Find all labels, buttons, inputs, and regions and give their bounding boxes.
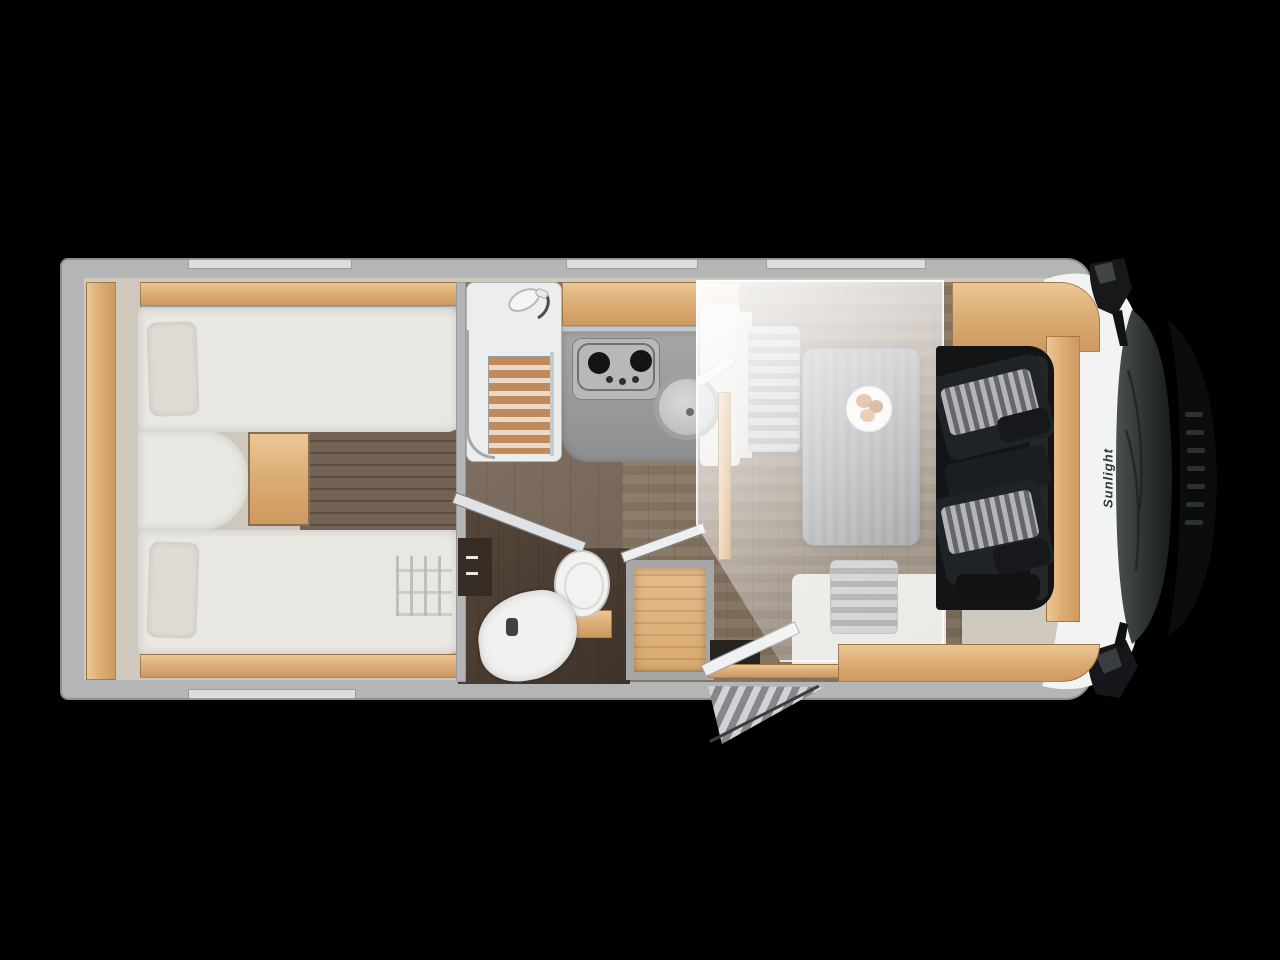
window xyxy=(766,259,926,269)
cab-seat-cushion xyxy=(956,574,1040,600)
between-beds-floor xyxy=(300,430,458,530)
windshield xyxy=(1116,310,1172,644)
basin-faucet xyxy=(506,618,518,636)
front-grille-mass xyxy=(1168,320,1217,636)
cabinet-handle xyxy=(466,556,478,559)
sink-drain xyxy=(686,408,694,416)
headboard-shelf xyxy=(86,282,116,680)
cabinet-handle xyxy=(466,572,478,575)
overhead-locker-top xyxy=(140,282,458,306)
window xyxy=(188,689,356,699)
hob-burner xyxy=(588,352,610,374)
center-bed-cushion xyxy=(138,430,248,530)
shower-head-icon xyxy=(498,282,564,344)
shower-duckboard xyxy=(488,356,554,454)
bedside-step xyxy=(248,432,310,526)
pillow xyxy=(146,541,199,639)
hob-knob xyxy=(606,376,613,383)
cab-trim-bottom xyxy=(838,644,1100,682)
shower-glass-panel xyxy=(550,352,554,456)
hob-burner xyxy=(630,350,652,372)
overhead-locker-bottom xyxy=(140,654,458,678)
wardrobe xyxy=(626,560,714,680)
brand-logo: Sunlight xyxy=(1096,412,1120,544)
hob-knob xyxy=(619,378,626,385)
window xyxy=(566,259,698,269)
scene-background: Sunlight xyxy=(0,0,1280,960)
pillow xyxy=(146,321,199,417)
window xyxy=(188,259,352,269)
cab-interior xyxy=(936,346,1054,610)
hob-knob xyxy=(632,376,639,383)
bathroom-cabinet xyxy=(458,538,492,596)
bedroom-divider-wall xyxy=(456,282,466,682)
bed-ladder-marks xyxy=(396,556,452,616)
